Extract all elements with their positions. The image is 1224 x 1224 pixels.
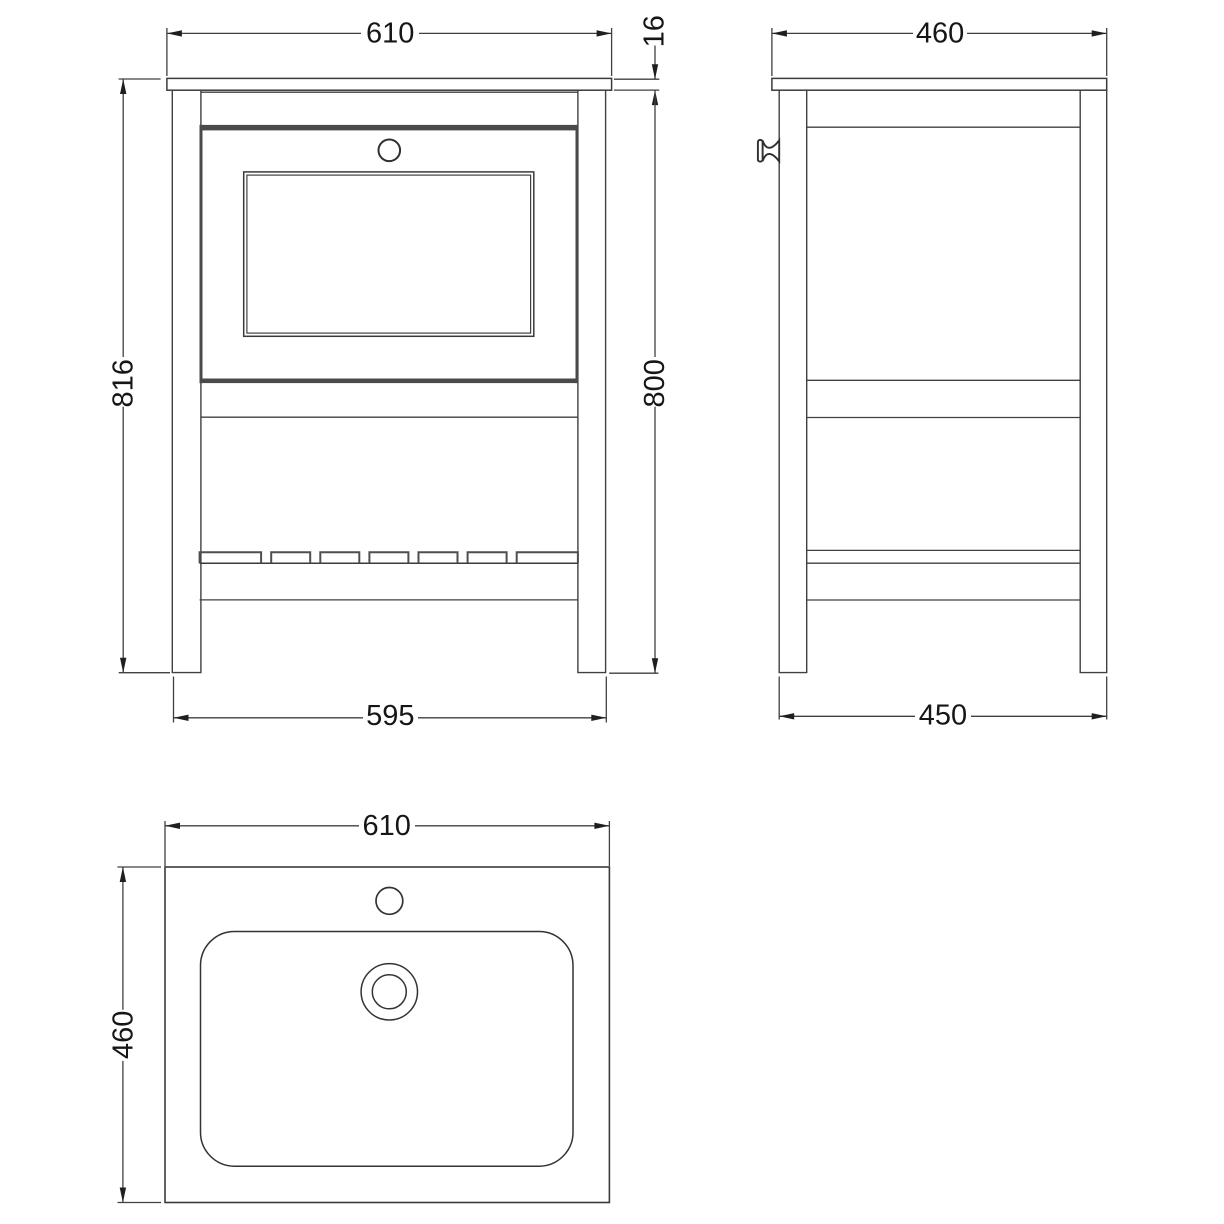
svg-text:800: 800	[639, 359, 671, 407]
svg-text:595: 595	[366, 700, 414, 732]
svg-text:816: 816	[107, 359, 139, 407]
svg-text:16: 16	[638, 15, 670, 47]
svg-text:610: 610	[366, 18, 414, 50]
svg-text:460: 460	[916, 18, 964, 50]
svg-text:450: 450	[919, 700, 967, 732]
svg-text:460: 460	[108, 1011, 140, 1059]
svg-text:610: 610	[363, 810, 411, 842]
